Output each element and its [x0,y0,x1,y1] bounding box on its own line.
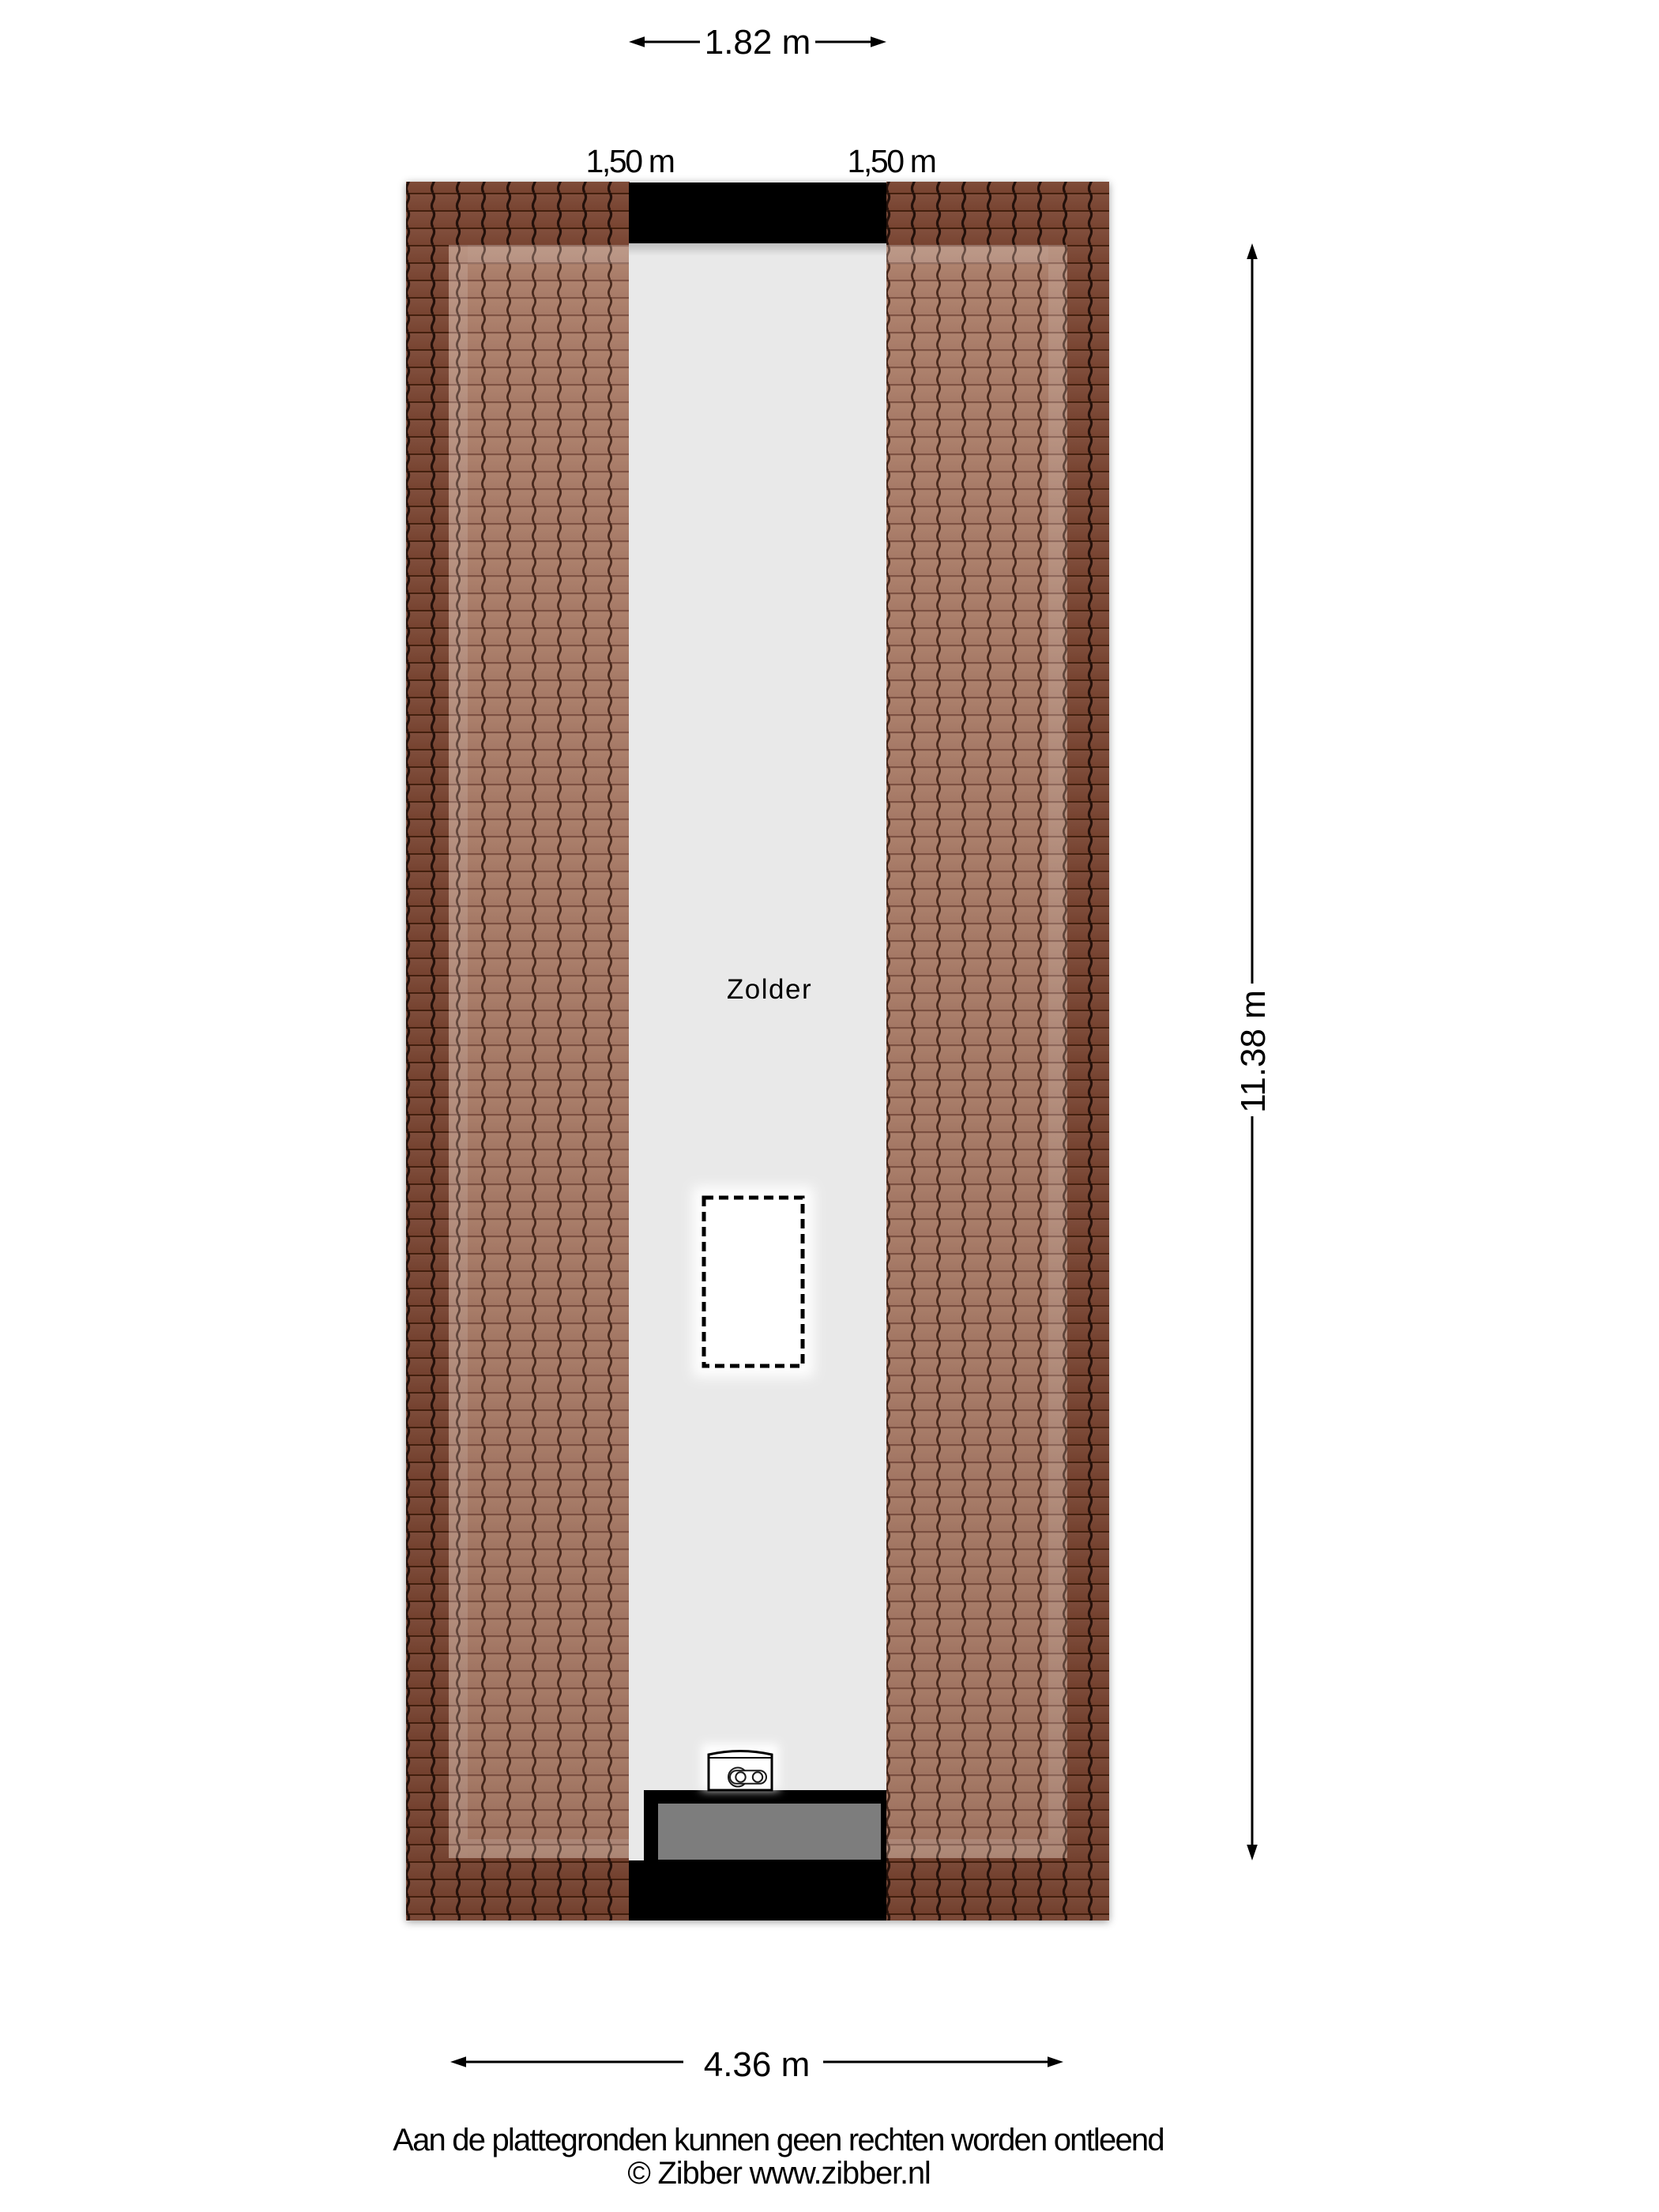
svg-text:© Zibber www.zibber.nl: © Zibber www.zibber.nl [627,2156,930,2191]
svg-text:1.82 m: 1.82 m [705,23,811,62]
svg-text:Zolder: Zolder [727,974,812,1005]
svg-text:Aan de plattegronden kunnen ge: Aan de plattegronden kunnen geen rechten… [393,2123,1164,2157]
svg-text:11.38 m: 11.38 m [1234,990,1273,1113]
svg-text:1,50 m: 1,50 m [586,143,674,179]
svg-text:4.36 m: 4.36 m [704,2045,811,2084]
svg-text:1,50 m: 1,50 m [848,143,935,179]
